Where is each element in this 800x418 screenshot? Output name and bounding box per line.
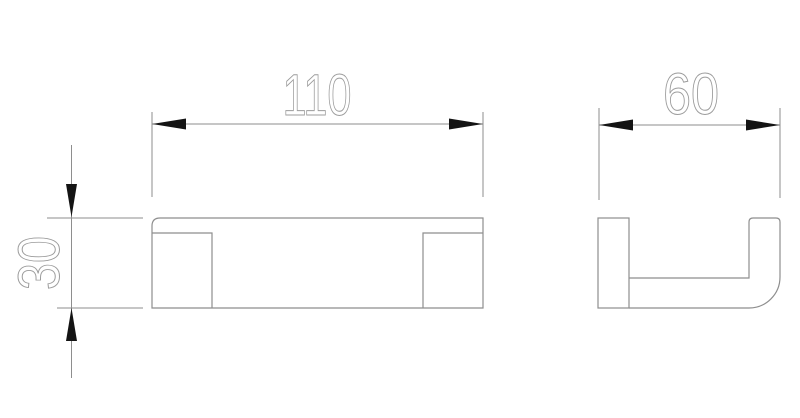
dimension-value-height: 30 bbox=[7, 236, 72, 290]
arrowhead-right-icon bbox=[449, 119, 483, 130]
front-view bbox=[152, 218, 483, 308]
arrowhead-right-icon bbox=[746, 120, 780, 131]
dimension-depth: 60 bbox=[599, 62, 780, 200]
dimension-length: 110 bbox=[152, 63, 483, 197]
side-view-hook-profile bbox=[629, 218, 780, 308]
arrowhead-bottom-icon bbox=[66, 308, 77, 341]
side-view bbox=[598, 218, 780, 308]
front-view-left-block bbox=[152, 233, 212, 308]
technical-drawing: 110 60 30 bbox=[0, 0, 800, 418]
front-view-right-block bbox=[423, 233, 483, 308]
drawing-canvas: 110 60 30 bbox=[0, 0, 800, 418]
front-view-outline bbox=[152, 218, 483, 308]
dimension-height: 30 bbox=[7, 145, 143, 378]
dimension-value-length: 110 bbox=[283, 63, 352, 128]
arrowhead-left-icon bbox=[152, 119, 186, 130]
arrowhead-left-icon bbox=[599, 120, 633, 131]
dimension-value-depth: 60 bbox=[663, 62, 719, 127]
side-view-wall-plate bbox=[598, 218, 629, 308]
arrowhead-top-icon bbox=[66, 184, 77, 217]
